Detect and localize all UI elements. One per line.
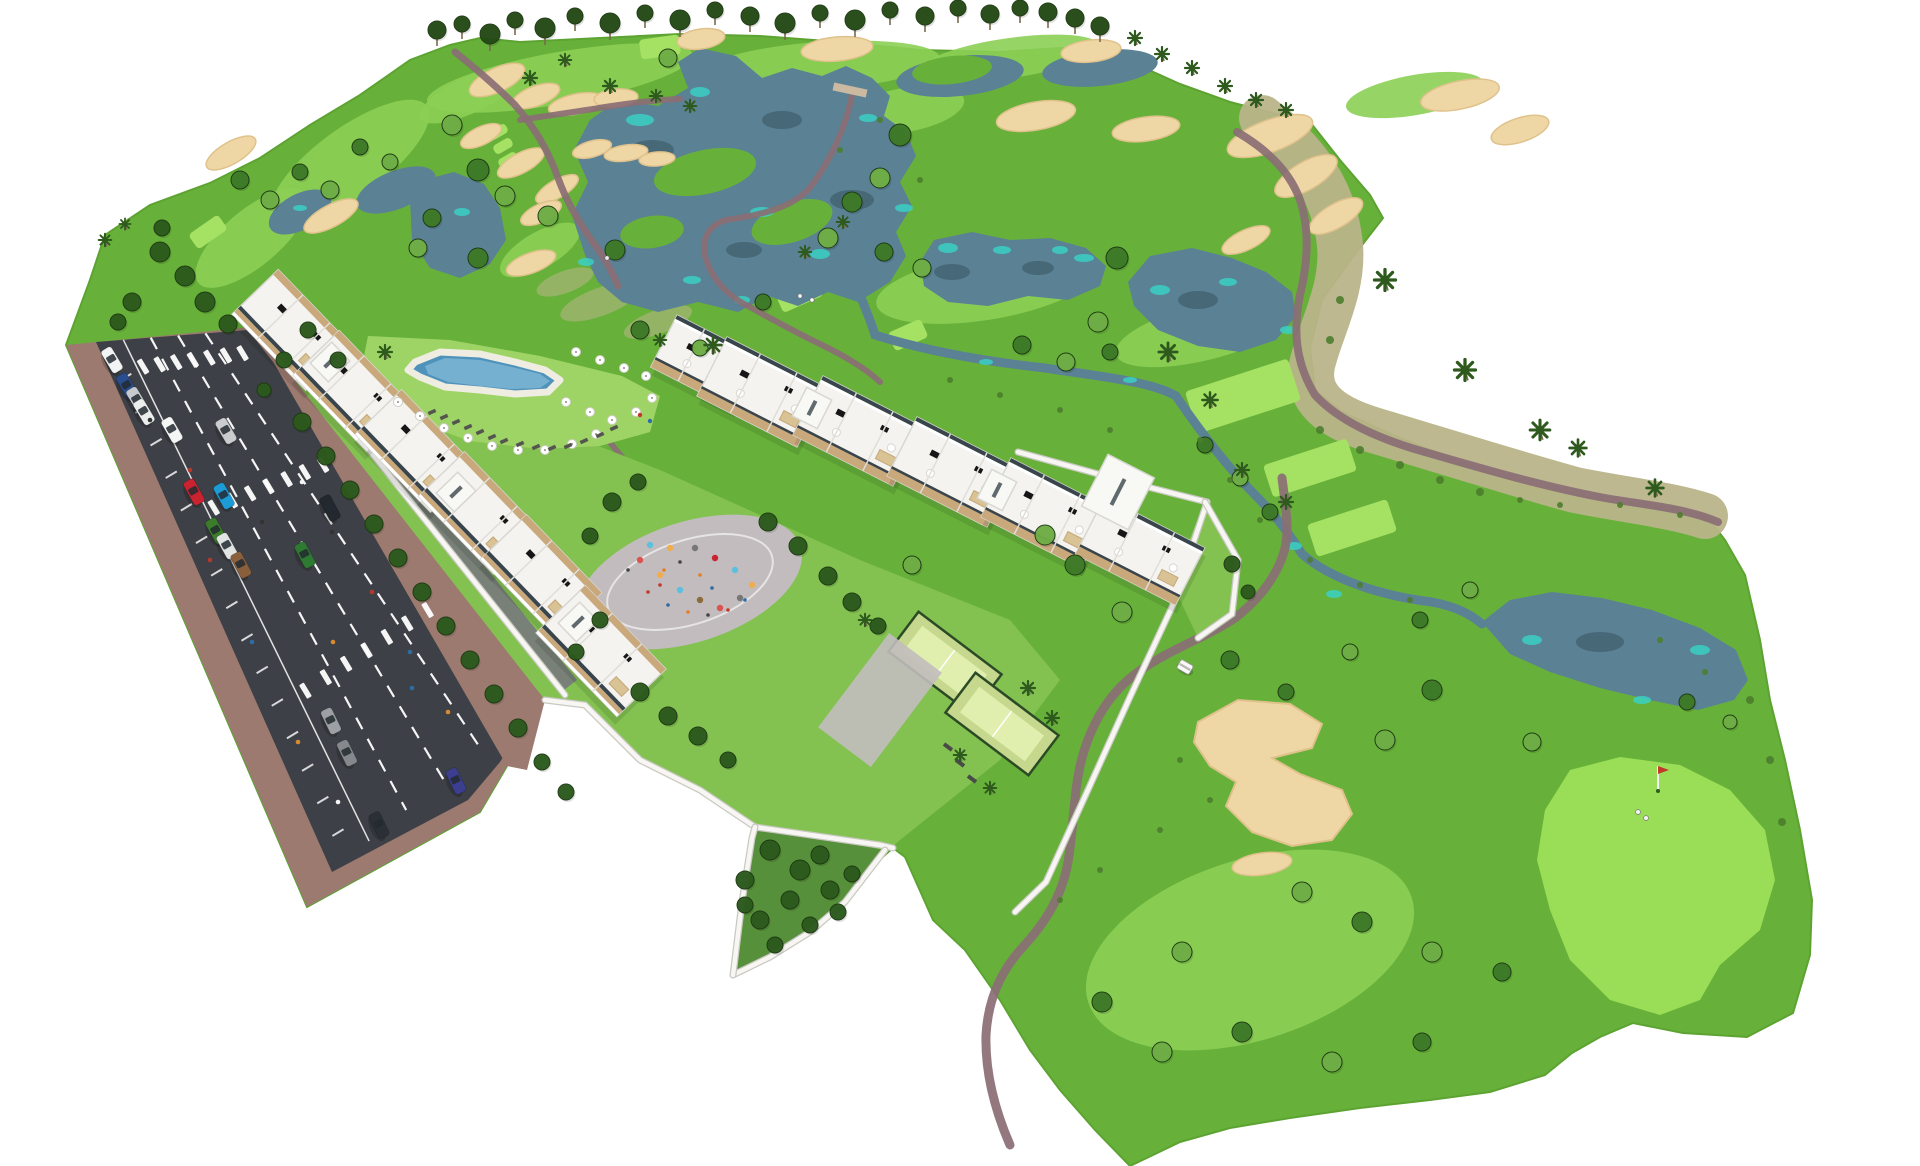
shallow-water-highlight bbox=[1633, 696, 1651, 704]
tree bbox=[1221, 651, 1239, 669]
tree bbox=[468, 248, 488, 268]
tree bbox=[1065, 555, 1085, 575]
palm-tree bbox=[1530, 420, 1550, 440]
palm-tree bbox=[1202, 392, 1217, 407]
tree bbox=[195, 292, 215, 312]
tree bbox=[1413, 1033, 1431, 1051]
tree bbox=[568, 644, 584, 660]
shallow-water-highlight bbox=[454, 208, 470, 216]
palm-tree bbox=[378, 345, 392, 359]
playground-equipment bbox=[717, 605, 723, 611]
tree bbox=[659, 49, 677, 67]
tree bbox=[461, 651, 479, 669]
deep-water-patch bbox=[1178, 291, 1218, 309]
palm-crown bbox=[1576, 446, 1580, 450]
person bbox=[726, 608, 730, 612]
tree bbox=[219, 315, 237, 333]
bush bbox=[1177, 757, 1183, 763]
tree bbox=[1172, 942, 1192, 962]
south-garden bbox=[733, 827, 885, 975]
tree bbox=[1224, 556, 1240, 572]
deep-water-patch bbox=[1022, 261, 1054, 275]
palm-crown bbox=[803, 250, 806, 253]
tree bbox=[1112, 602, 1132, 622]
tree bbox=[423, 209, 441, 227]
tree bbox=[509, 719, 527, 737]
bush bbox=[1766, 756, 1774, 764]
palm-crown bbox=[1254, 98, 1258, 102]
parasol-pole bbox=[397, 401, 399, 403]
tree bbox=[875, 243, 893, 261]
bush bbox=[877, 117, 883, 123]
palm-crown bbox=[103, 238, 106, 241]
person bbox=[686, 610, 690, 614]
palm-crown bbox=[1284, 108, 1288, 112]
parasol-pole bbox=[467, 437, 469, 439]
tree bbox=[1232, 1022, 1252, 1042]
palm-crown bbox=[1223, 84, 1227, 88]
tree bbox=[341, 481, 359, 499]
bush bbox=[1407, 597, 1413, 603]
parasol-pole bbox=[589, 411, 591, 413]
bush bbox=[1227, 477, 1233, 483]
tree bbox=[454, 16, 470, 32]
deep-water-patch bbox=[934, 264, 970, 280]
bush bbox=[837, 147, 843, 153]
tree bbox=[631, 321, 649, 339]
playground-equipment bbox=[692, 545, 698, 551]
bush bbox=[1357, 582, 1363, 588]
parasol-pole bbox=[651, 397, 653, 399]
person bbox=[666, 603, 670, 607]
parasol-pole bbox=[491, 445, 493, 447]
tree bbox=[352, 139, 368, 155]
tree bbox=[409, 239, 427, 257]
tree bbox=[741, 7, 759, 25]
tree bbox=[276, 352, 292, 368]
bush bbox=[1107, 427, 1113, 433]
tree bbox=[1342, 644, 1358, 660]
tree bbox=[300, 322, 316, 338]
person bbox=[743, 598, 747, 602]
playground-equipment bbox=[637, 557, 643, 563]
bush bbox=[1657, 637, 1663, 643]
golfer bbox=[810, 298, 814, 302]
shallow-water-highlight bbox=[859, 114, 877, 122]
bush bbox=[1336, 296, 1344, 304]
palm-crown bbox=[863, 618, 866, 621]
tree bbox=[1375, 730, 1395, 750]
tree bbox=[631, 683, 649, 701]
tree bbox=[1035, 525, 1055, 545]
parasol-pole bbox=[575, 351, 577, 353]
tree bbox=[534, 754, 550, 770]
tree bbox=[950, 0, 966, 16]
palm-crown bbox=[654, 94, 657, 97]
tree bbox=[845, 10, 865, 30]
palm-tree bbox=[1279, 495, 1293, 509]
golf-resort-aerial-render bbox=[0, 0, 1920, 1166]
palm-tree bbox=[1155, 47, 1169, 61]
parasol-pole bbox=[635, 411, 637, 413]
tree bbox=[903, 556, 921, 574]
parasol-pole bbox=[443, 427, 445, 429]
shallow-water-highlight bbox=[1326, 590, 1342, 598]
tree bbox=[811, 846, 829, 864]
shallow-water-highlight bbox=[690, 87, 710, 97]
tree bbox=[830, 904, 846, 920]
pedestrian bbox=[260, 520, 265, 525]
tree bbox=[123, 293, 141, 311]
shallow-water-highlight bbox=[1150, 285, 1170, 295]
parasol-pole bbox=[623, 367, 625, 369]
tree bbox=[1057, 353, 1075, 371]
palm-crown bbox=[1166, 350, 1171, 355]
palm-tree bbox=[1045, 711, 1059, 725]
palm-tree bbox=[99, 234, 112, 247]
tree bbox=[154, 220, 170, 236]
pedestrian bbox=[300, 480, 305, 485]
playground-equipment bbox=[712, 555, 718, 561]
tree bbox=[442, 115, 462, 135]
palm-tree bbox=[119, 218, 130, 229]
tree bbox=[882, 2, 898, 18]
tree bbox=[689, 727, 707, 745]
bush bbox=[1476, 488, 1484, 496]
tree bbox=[692, 340, 708, 356]
bush bbox=[1257, 517, 1263, 523]
tree bbox=[751, 911, 769, 929]
tree bbox=[1102, 344, 1118, 360]
tree bbox=[1292, 882, 1312, 902]
palm-crown bbox=[1382, 277, 1387, 282]
pedestrian bbox=[296, 740, 301, 745]
tree bbox=[600, 13, 620, 33]
bush bbox=[1097, 867, 1103, 873]
palm-tree bbox=[984, 782, 997, 795]
tree bbox=[736, 871, 754, 889]
palm-crown bbox=[1537, 427, 1542, 432]
tree bbox=[1278, 684, 1294, 700]
tree bbox=[535, 18, 555, 38]
tree bbox=[1493, 963, 1511, 981]
person bbox=[710, 586, 714, 590]
pedestrian bbox=[331, 640, 336, 645]
palm-crown bbox=[711, 343, 715, 347]
shallow-water-highlight bbox=[1052, 246, 1068, 254]
palm-tree bbox=[1647, 480, 1664, 497]
palm-crown bbox=[988, 786, 991, 789]
bunker bbox=[1488, 109, 1552, 150]
bush bbox=[997, 392, 1003, 398]
pedestrian bbox=[148, 418, 153, 423]
tree bbox=[1088, 312, 1108, 332]
bush bbox=[1517, 497, 1523, 503]
tree bbox=[802, 917, 818, 933]
tree bbox=[789, 537, 807, 555]
playground-equipment bbox=[749, 582, 755, 588]
deep-water-patch bbox=[762, 111, 802, 129]
tree bbox=[913, 259, 931, 277]
shallow-water-highlight bbox=[1690, 645, 1710, 655]
tree bbox=[1262, 504, 1278, 520]
tree bbox=[821, 881, 839, 899]
tree bbox=[231, 171, 249, 189]
pedestrian bbox=[446, 710, 451, 715]
tree bbox=[150, 242, 170, 262]
palm-crown bbox=[608, 84, 612, 88]
pedestrian bbox=[410, 686, 415, 691]
tree bbox=[467, 159, 489, 181]
shallow-water-highlight bbox=[683, 276, 701, 284]
parasol-pole bbox=[611, 419, 613, 421]
deep-water-patch bbox=[726, 242, 762, 258]
shallow-water-highlight bbox=[895, 204, 913, 212]
cyclist bbox=[648, 419, 652, 423]
tree bbox=[257, 383, 271, 397]
tree bbox=[812, 5, 828, 21]
palm-crown bbox=[1208, 398, 1212, 402]
bush bbox=[1436, 476, 1444, 484]
palm-crown bbox=[688, 104, 691, 107]
palm-tree bbox=[954, 749, 967, 762]
tree bbox=[582, 528, 598, 544]
tree bbox=[842, 192, 862, 212]
bush bbox=[1677, 512, 1683, 518]
person bbox=[662, 568, 666, 572]
palm-tree bbox=[523, 71, 537, 85]
parasol-pole bbox=[565, 401, 567, 403]
cyclist bbox=[638, 413, 642, 417]
palm-tree bbox=[859, 614, 872, 627]
tree bbox=[1523, 733, 1541, 751]
shallow-water-highlight bbox=[293, 205, 307, 211]
palm-tree bbox=[684, 100, 697, 113]
shallow-water-highlight bbox=[1219, 278, 1237, 286]
palm-tree bbox=[1218, 79, 1232, 93]
tree bbox=[507, 12, 523, 28]
person bbox=[678, 560, 682, 564]
bush bbox=[947, 377, 953, 383]
golfer bbox=[1636, 810, 1641, 815]
bush bbox=[1057, 897, 1063, 903]
tree bbox=[870, 168, 890, 188]
tree bbox=[1152, 1042, 1172, 1062]
palm-crown bbox=[124, 223, 127, 226]
parasol-pole bbox=[645, 375, 647, 377]
palm-tree bbox=[1279, 103, 1293, 117]
tree bbox=[389, 549, 407, 567]
tree bbox=[819, 567, 837, 585]
tree bbox=[538, 206, 558, 226]
palm-crown bbox=[1653, 486, 1657, 490]
bush bbox=[917, 177, 923, 183]
palm-crown bbox=[1026, 686, 1030, 690]
palm-crown bbox=[841, 220, 844, 223]
palm-tree bbox=[1249, 93, 1263, 107]
palm-tree bbox=[1235, 463, 1249, 477]
palm-crown bbox=[958, 753, 961, 756]
tree bbox=[175, 266, 195, 286]
tree bbox=[365, 515, 383, 533]
bush bbox=[1356, 446, 1364, 454]
pedestrian bbox=[250, 640, 255, 645]
playground-equipment bbox=[677, 587, 683, 593]
playground-equipment bbox=[647, 542, 653, 548]
playground-equipment bbox=[657, 572, 663, 578]
palm-crown bbox=[563, 58, 566, 61]
playground-equipment bbox=[737, 595, 743, 601]
tree bbox=[1012, 0, 1028, 16]
tree bbox=[1352, 912, 1372, 932]
palm-crown bbox=[383, 350, 387, 354]
tree bbox=[382, 154, 398, 170]
tree bbox=[889, 124, 911, 146]
tree bbox=[437, 617, 455, 635]
person bbox=[698, 573, 702, 577]
tree bbox=[637, 5, 653, 21]
person bbox=[626, 568, 630, 572]
tree bbox=[1091, 17, 1109, 35]
tree bbox=[916, 7, 934, 25]
shallow-water-highlight bbox=[1074, 254, 1094, 262]
tree bbox=[480, 24, 500, 44]
golfer bbox=[1644, 816, 1649, 821]
palm-tree bbox=[650, 90, 663, 103]
playground-equipment bbox=[667, 545, 673, 551]
tree bbox=[1241, 585, 1255, 599]
palm-tree bbox=[1021, 681, 1035, 695]
pedestrian bbox=[208, 558, 213, 563]
golf-hole bbox=[1656, 789, 1660, 793]
shallow-water-highlight bbox=[578, 258, 594, 266]
palm-tree bbox=[654, 334, 667, 347]
tree bbox=[767, 937, 783, 953]
palm-crown bbox=[1133, 36, 1137, 40]
palm-tree bbox=[603, 79, 617, 93]
bush bbox=[1746, 696, 1754, 704]
tree bbox=[1422, 680, 1442, 700]
shallow-water-highlight bbox=[938, 243, 958, 253]
person bbox=[706, 613, 710, 617]
palm-tree bbox=[705, 337, 722, 354]
tree bbox=[428, 21, 446, 39]
walker bbox=[605, 256, 609, 260]
tree bbox=[781, 891, 799, 909]
shallow-water-highlight bbox=[993, 246, 1011, 254]
palm-tree bbox=[1375, 270, 1396, 291]
bush bbox=[1307, 557, 1313, 563]
palm-tree bbox=[1455, 360, 1476, 381]
palm-crown bbox=[1462, 367, 1467, 372]
deep-water-patch bbox=[1576, 632, 1624, 652]
parasol-pole bbox=[419, 415, 421, 417]
palm-tree bbox=[1185, 61, 1199, 75]
shallow-water-highlight bbox=[810, 249, 830, 259]
palm-tree bbox=[799, 246, 812, 259]
parasol-pole bbox=[544, 449, 546, 451]
tree bbox=[844, 866, 860, 882]
bush bbox=[1057, 407, 1063, 413]
tree bbox=[293, 413, 311, 431]
person bbox=[658, 583, 662, 587]
tree bbox=[1106, 247, 1128, 269]
pedestrian bbox=[188, 468, 193, 473]
tree bbox=[1412, 612, 1428, 628]
palm-tree bbox=[1128, 31, 1142, 45]
tree bbox=[110, 314, 126, 330]
pedestrian bbox=[408, 650, 413, 655]
palm-crown bbox=[1160, 52, 1164, 56]
tree bbox=[1066, 9, 1084, 27]
bush bbox=[1617, 502, 1623, 508]
tree bbox=[1422, 942, 1442, 962]
tree bbox=[843, 593, 861, 611]
tree bbox=[317, 447, 335, 465]
shallow-water-highlight bbox=[1123, 377, 1137, 383]
palm-tree bbox=[837, 216, 850, 229]
shallow-water-highlight bbox=[1522, 635, 1542, 645]
parasol-pole bbox=[517, 449, 519, 451]
tree bbox=[630, 474, 646, 490]
bush bbox=[1778, 818, 1786, 826]
palm-crown bbox=[1240, 468, 1244, 472]
tree bbox=[759, 513, 777, 531]
tree bbox=[592, 612, 608, 628]
palm-tree bbox=[559, 54, 572, 67]
pedestrian bbox=[370, 590, 375, 595]
tree bbox=[1462, 582, 1478, 598]
tree bbox=[413, 583, 431, 601]
parasol-pole bbox=[599, 359, 601, 361]
palm-tree bbox=[1570, 440, 1587, 457]
tree bbox=[659, 707, 677, 725]
pedestrian bbox=[330, 530, 335, 535]
tree bbox=[818, 228, 838, 248]
tree bbox=[755, 294, 771, 310]
palm-crown bbox=[658, 338, 661, 341]
shallow-water-highlight bbox=[979, 359, 993, 365]
playground-equipment bbox=[697, 597, 703, 603]
tree bbox=[720, 752, 736, 768]
person bbox=[646, 590, 650, 594]
pedestrian bbox=[336, 800, 341, 805]
tree bbox=[603, 493, 621, 511]
tree bbox=[790, 860, 810, 880]
tree bbox=[1679, 694, 1695, 710]
bush bbox=[1557, 502, 1563, 508]
tree bbox=[775, 13, 795, 33]
tree bbox=[495, 186, 515, 206]
playground-equipment bbox=[732, 567, 738, 573]
shallow-water-highlight bbox=[626, 114, 654, 126]
bush bbox=[1316, 426, 1324, 434]
tree bbox=[737, 897, 753, 913]
palm-tree bbox=[1159, 343, 1177, 361]
tree bbox=[321, 181, 339, 199]
golfer bbox=[798, 294, 802, 298]
tree bbox=[1092, 992, 1112, 1012]
palm-crown bbox=[1190, 66, 1194, 70]
tree bbox=[330, 352, 346, 368]
tree bbox=[670, 10, 690, 30]
bush bbox=[1207, 797, 1213, 803]
bush bbox=[1326, 336, 1334, 344]
tree bbox=[567, 8, 583, 24]
palm-crown bbox=[528, 76, 532, 80]
bush bbox=[1702, 669, 1708, 675]
site-plan-render bbox=[0, 0, 1920, 1166]
